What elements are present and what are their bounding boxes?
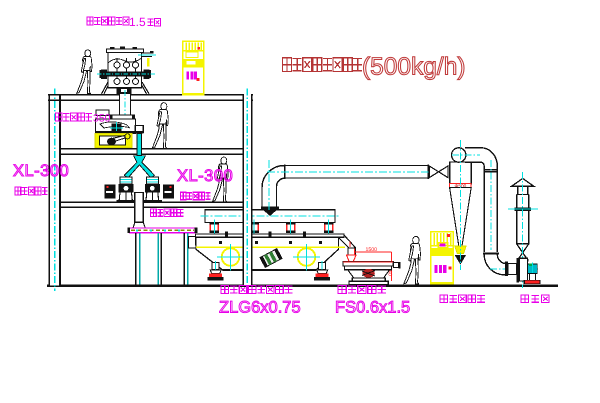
svg-text:FS0.6x1.5: FS0.6x1.5 [335,299,410,317]
svg-text:1.5: 1.5 [129,15,146,29]
svg-text:XL-300: XL-300 [177,167,233,185]
svg-text:ZLG6x0.75: ZLG6x0.75 [219,299,301,317]
svg-text:(500kg/h): (500kg/h) [362,54,466,81]
svg-text:350: 350 [93,113,111,125]
svg-text:1500: 1500 [366,247,378,253]
svg-text:XL-300: XL-300 [13,162,69,180]
